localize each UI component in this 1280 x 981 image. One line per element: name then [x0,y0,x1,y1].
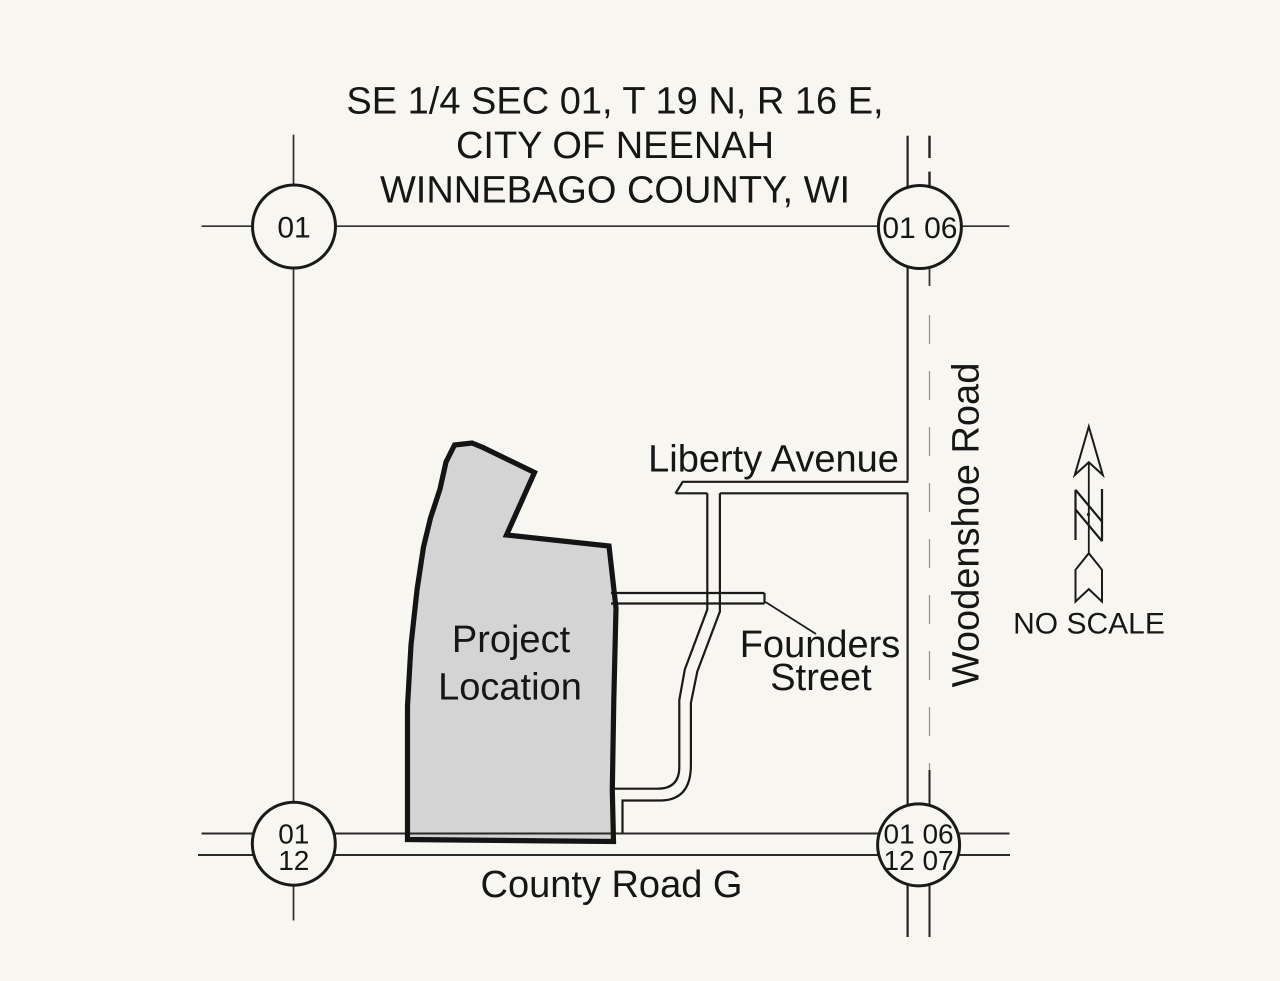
svg-text:County Road G: County Road G [481,864,743,906]
svg-text:NO SCALE: NO SCALE [1013,608,1165,641]
svg-text:12 07: 12 07 [884,845,954,876]
svg-text:Project: Project [452,619,571,661]
svg-text:Liberty Avenue: Liberty Avenue [648,439,899,481]
svg-text:Location: Location [438,666,582,708]
svg-text:SE 1/4 SEC 01, T 19 N, R 16 E,: SE 1/4 SEC 01, T 19 N, R 16 E, [346,80,883,122]
svg-text:01: 01 [277,212,310,245]
svg-text:01 06: 01 06 [882,212,957,245]
svg-text:Woodenshoe Road: Woodenshoe Road [946,363,988,688]
svg-text:CITY OF NEENAH: CITY OF NEENAH [456,125,774,167]
svg-text:12: 12 [278,845,309,876]
svg-text:WINNEBAGO COUNTY, WI: WINNEBAGO COUNTY, WI [380,170,850,212]
svg-text:Street: Street [770,657,872,699]
